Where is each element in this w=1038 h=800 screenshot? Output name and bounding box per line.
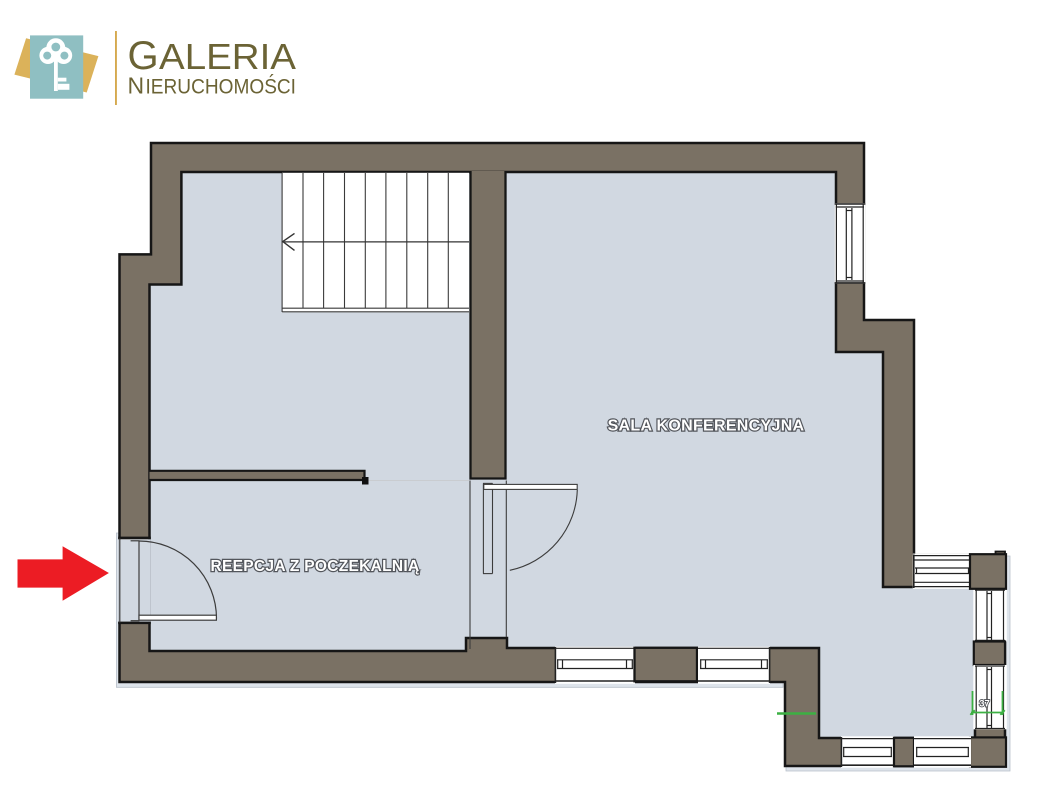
- svg-text:N: N: [128, 72, 145, 98]
- svg-text:REEPCJA Z POCZEKALNIĄ: REEPCJA Z POCZEKALNIĄ: [211, 558, 420, 575]
- svg-text:SALA KONFERENCYJNA: SALA KONFERENCYJNA: [608, 418, 805, 435]
- svg-text:IERUCHOMOŚCI: IERUCHOMOŚCI: [146, 74, 297, 98]
- svg-text:ALERIA: ALERIA: [159, 36, 296, 77]
- svg-text:37: 37: [979, 699, 990, 710]
